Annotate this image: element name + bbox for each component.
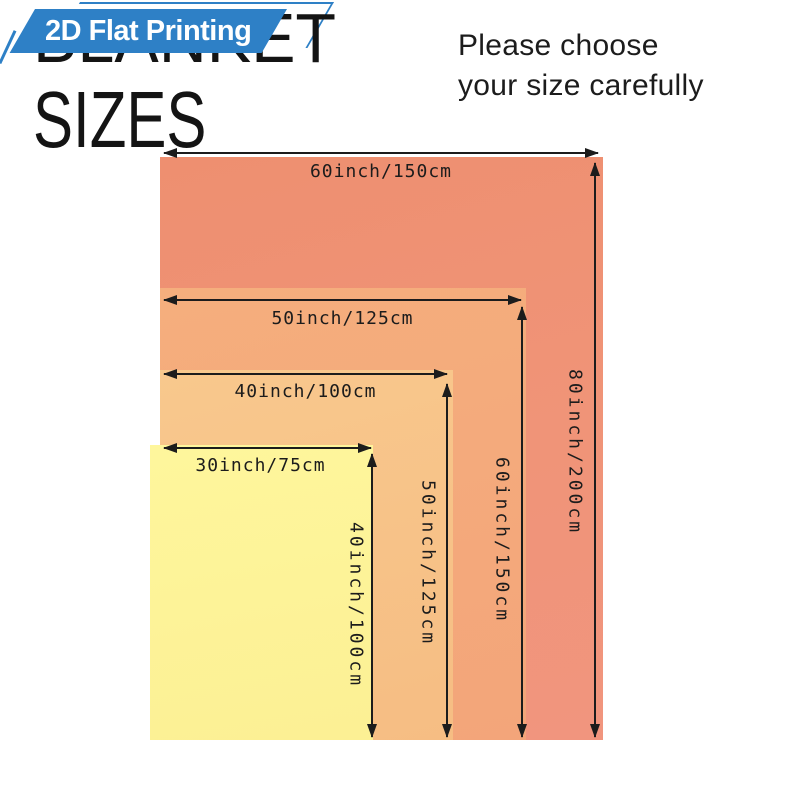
- width-arrow-30inch: [164, 447, 371, 449]
- height-arrow-80inch: [594, 163, 596, 737]
- width-arrow-40inch: [164, 373, 447, 375]
- size-warning-note: Please choose your size carefully: [458, 26, 704, 106]
- width-label-30inch: 30inch/75cm: [150, 455, 371, 476]
- note-line-2: your size carefully: [458, 66, 704, 106]
- blanket-size-chart: BLANKET SIZES 2D Flat Printing Please ch…: [0, 0, 800, 800]
- flat-printing-badge-label: 2D Flat Printing: [45, 15, 251, 48]
- height-label-80inch: 80inch/200cm: [563, 352, 587, 552]
- blanket-rect-30x40: [150, 445, 373, 740]
- width-label-50inch: 50inch/125cm: [164, 308, 521, 329]
- width-arrow-50inch: [164, 299, 521, 301]
- note-line-1: Please choose: [458, 26, 704, 66]
- width-label-60inch: 60inch/150cm: [164, 161, 598, 182]
- height-label-50inch: 50inch/125cm: [416, 463, 440, 663]
- height-label-40inch: 40inch/100cm: [344, 505, 368, 705]
- title-word-sizes: SIZES: [33, 80, 206, 160]
- height-arrow-40inch: [371, 454, 373, 737]
- width-arrow-60inch: [164, 152, 598, 154]
- height-label-60inch: 60inch/150cm: [490, 440, 514, 640]
- flat-printing-badge: 2D Flat Printing: [10, 9, 287, 53]
- height-arrow-50inch: [446, 384, 448, 737]
- height-arrow-60inch: [521, 307, 523, 737]
- width-label-40inch: 40inch/100cm: [164, 381, 447, 402]
